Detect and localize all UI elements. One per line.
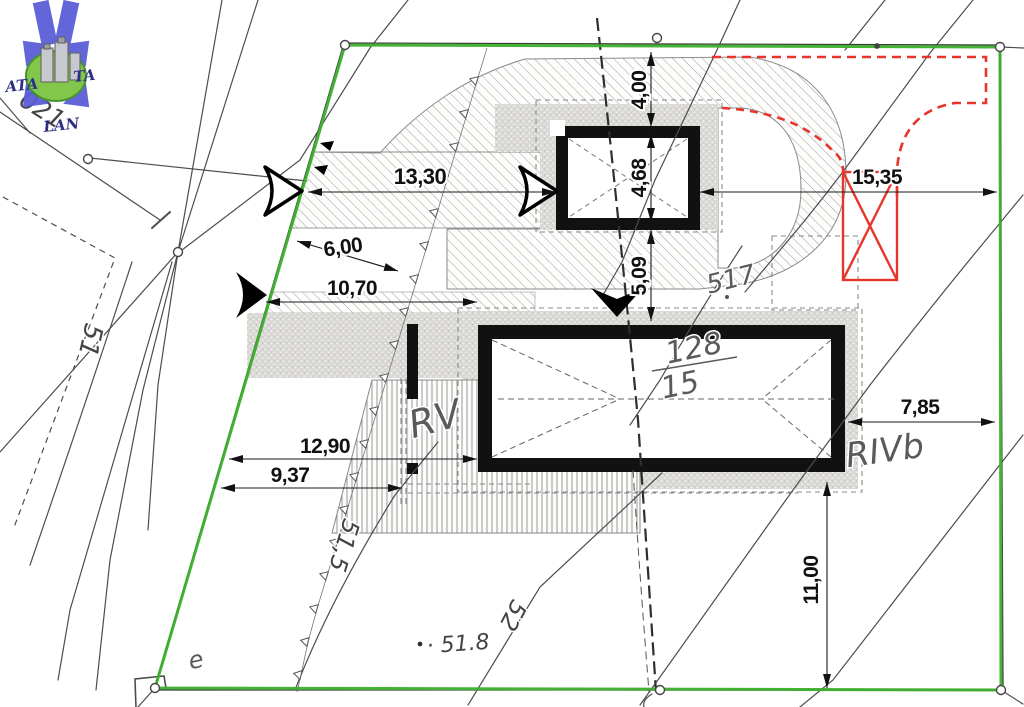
- logo-text-bottom: LAN: [42, 114, 82, 136]
- garage-building: [550, 120, 700, 230]
- logo-text-right: TA: [73, 66, 97, 86]
- label-point-e: e: [186, 645, 206, 675]
- dim-boundary-to-house: 10,70: [327, 277, 377, 300]
- pedestrian-entry-arrow-icon: [236, 272, 267, 318]
- dim-boundary-to-driveway: 6,00: [322, 233, 364, 261]
- dim-boundary-to-terrace: 9,37: [271, 464, 310, 487]
- garage-wall-notch: [550, 120, 565, 136]
- dim-boundary-to-house-south: 12,90: [300, 435, 350, 458]
- dim-garage-to-east-boundary: 15,35: [852, 166, 903, 189]
- label-contour-51-5: 51,5: [323, 516, 365, 575]
- dim-driveway-length: 13,30: [394, 164, 447, 189]
- label-spot-elevation: · 51.8: [426, 630, 491, 659]
- main-building: [478, 325, 845, 472]
- logo-text-left: ATA: [3, 75, 40, 97]
- terrace-band-west-slant: [247, 313, 480, 378]
- site-plan-drawing: 13,30 6,00 10,70 12,90 9,37 4,00 4,68 5,…: [0, 0, 1024, 707]
- dim-garage-to-house: 5,09: [628, 257, 651, 296]
- site-plan-page: 13,30 6,00 10,70 12,90 9,37 4,00 4,68 5,…: [0, 0, 1024, 707]
- dim-garage-depth: 4,68: [628, 158, 651, 198]
- garden-wall-stub: [407, 324, 418, 399]
- dim-house-to-south-boundary: 11,00: [800, 556, 823, 605]
- dim-house-to-east-boundary: 7,85: [901, 396, 941, 419]
- label-contour-52: 52: [493, 595, 532, 635]
- dim-boundary-to-garage: 4,00: [628, 71, 651, 110]
- boundary-tick-arrow-1: [320, 141, 334, 151]
- label-contour-51: 51: [72, 321, 109, 360]
